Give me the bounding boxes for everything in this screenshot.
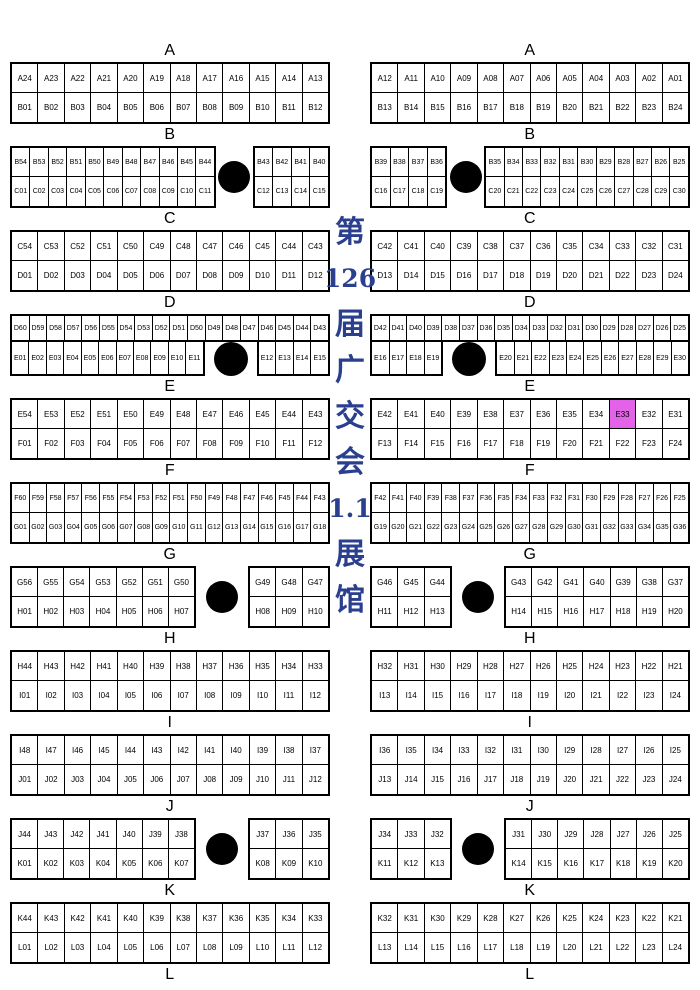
booth-H22[interactable]: H22 xyxy=(636,652,662,681)
booth-L09[interactable]: L09 xyxy=(223,933,249,962)
booth-B09[interactable]: B09 xyxy=(223,93,249,122)
booth-E43[interactable]: E43 xyxy=(303,400,328,429)
booth-K32[interactable]: K32 xyxy=(372,904,398,933)
booth-D36[interactable]: D36 xyxy=(478,316,496,340)
booth-B07[interactable]: B07 xyxy=(171,93,197,122)
booth-H42[interactable]: H42 xyxy=(65,652,91,681)
booth-K22[interactable]: K22 xyxy=(636,904,662,933)
booth-L08[interactable]: L08 xyxy=(197,933,223,962)
booth-B45[interactable]: B45 xyxy=(178,148,196,177)
booth-G45[interactable]: G45 xyxy=(398,568,424,597)
booth-G51[interactable]: G51 xyxy=(143,568,169,597)
booth-D50[interactable]: D50 xyxy=(188,316,206,340)
booth-F46[interactable]: F46 xyxy=(259,484,277,513)
booth-J34[interactable]: J34 xyxy=(372,820,398,849)
booth-H38[interactable]: H38 xyxy=(171,652,197,681)
booth-K34[interactable]: K34 xyxy=(276,904,302,933)
booth-K24[interactable]: K24 xyxy=(583,904,609,933)
booth-H08[interactable]: H08 xyxy=(250,597,276,626)
booth-F15[interactable]: F15 xyxy=(425,429,451,458)
booth-F23[interactable]: F23 xyxy=(636,429,662,458)
booth-F44[interactable]: F44 xyxy=(294,484,312,513)
booth-G42[interactable]: G42 xyxy=(532,568,558,597)
booth-B52[interactable]: B52 xyxy=(49,148,67,177)
booth-F05[interactable]: F05 xyxy=(118,429,144,458)
booth-K43[interactable]: K43 xyxy=(38,904,64,933)
booth-L18[interactable]: L18 xyxy=(504,933,530,962)
booth-F27[interactable]: F27 xyxy=(636,484,654,513)
booth-D59[interactable]: D59 xyxy=(30,316,48,340)
booth-B12[interactable]: B12 xyxy=(303,93,328,122)
booth-B54[interactable]: B54 xyxy=(12,148,30,177)
booth-J03[interactable]: J03 xyxy=(65,765,91,794)
booth-I13[interactable]: I13 xyxy=(372,681,398,710)
booth-J19[interactable]: J19 xyxy=(531,765,557,794)
booth-C19[interactable]: C19 xyxy=(428,177,446,206)
booth-E39[interactable]: E39 xyxy=(451,400,477,429)
booth-D40[interactable]: D40 xyxy=(407,316,425,340)
booth-I09[interactable]: I09 xyxy=(223,681,249,710)
booth-C21[interactable]: C21 xyxy=(505,177,523,206)
booth-G40[interactable]: G40 xyxy=(584,568,610,597)
booth-A06[interactable]: A06 xyxy=(531,64,557,93)
booth-C45[interactable]: C45 xyxy=(250,232,276,261)
booth-H24[interactable]: H24 xyxy=(583,652,609,681)
booth-G20[interactable]: G20 xyxy=(390,513,408,542)
booth-E05[interactable]: E05 xyxy=(82,342,99,374)
booth-J08[interactable]: J08 xyxy=(197,765,223,794)
booth-G36[interactable]: G36 xyxy=(671,513,688,542)
booth-D07[interactable]: D07 xyxy=(171,261,197,290)
booth-K11[interactable]: K11 xyxy=(372,849,398,878)
booth-A23[interactable]: A23 xyxy=(38,64,64,93)
booth-I16[interactable]: I16 xyxy=(451,681,477,710)
booth-H41[interactable]: H41 xyxy=(91,652,117,681)
booth-G30[interactable]: G30 xyxy=(566,513,584,542)
booth-G34[interactable]: G34 xyxy=(636,513,654,542)
booth-B51[interactable]: B51 xyxy=(67,148,85,177)
booth-G25[interactable]: G25 xyxy=(478,513,496,542)
booth-B30[interactable]: B30 xyxy=(578,148,596,177)
booth-K25[interactable]: K25 xyxy=(557,904,583,933)
booth-K38[interactable]: K38 xyxy=(171,904,197,933)
booth-C02[interactable]: C02 xyxy=(30,177,48,206)
booth-G52[interactable]: G52 xyxy=(117,568,143,597)
booth-C29[interactable]: C29 xyxy=(652,177,670,206)
booth-K41[interactable]: K41 xyxy=(91,904,117,933)
booth-D43[interactable]: D43 xyxy=(311,316,328,340)
booth-D20[interactable]: D20 xyxy=(557,261,583,290)
booth-E13[interactable]: E13 xyxy=(276,342,294,374)
booth-H13[interactable]: H13 xyxy=(425,597,450,626)
booth-I48[interactable]: I48 xyxy=(12,736,38,765)
booth-H40[interactable]: H40 xyxy=(118,652,144,681)
booth-L06[interactable]: L06 xyxy=(144,933,170,962)
booth-F31[interactable]: F31 xyxy=(566,484,584,513)
booth-D27[interactable]: D27 xyxy=(636,316,654,340)
booth-D04[interactable]: D04 xyxy=(91,261,117,290)
booth-K01[interactable]: K01 xyxy=(12,849,38,878)
booth-G10[interactable]: G10 xyxy=(170,513,188,542)
booth-J06[interactable]: J06 xyxy=(144,765,170,794)
booth-H29[interactable]: H29 xyxy=(451,652,477,681)
booth-J04[interactable]: J04 xyxy=(91,765,117,794)
booth-E46[interactable]: E46 xyxy=(223,400,249,429)
booth-D52[interactable]: D52 xyxy=(153,316,171,340)
booth-F18[interactable]: F18 xyxy=(504,429,530,458)
booth-A11[interactable]: A11 xyxy=(398,64,424,93)
booth-F55[interactable]: F55 xyxy=(100,484,118,513)
booth-B15[interactable]: B15 xyxy=(425,93,451,122)
booth-H30[interactable]: H30 xyxy=(425,652,451,681)
booth-I31[interactable]: I31 xyxy=(504,736,530,765)
booth-D31[interactable]: D31 xyxy=(566,316,584,340)
booth-I30[interactable]: I30 xyxy=(531,736,557,765)
booth-D33[interactable]: D33 xyxy=(530,316,548,340)
booth-C04[interactable]: C04 xyxy=(67,177,85,206)
booth-G55[interactable]: G55 xyxy=(38,568,64,597)
booth-K27[interactable]: K27 xyxy=(504,904,530,933)
booth-K12[interactable]: K12 xyxy=(398,849,424,878)
booth-H27[interactable]: H27 xyxy=(504,652,530,681)
booth-F06[interactable]: F06 xyxy=(144,429,170,458)
booth-C46[interactable]: C46 xyxy=(223,232,249,261)
booth-I47[interactable]: I47 xyxy=(38,736,64,765)
booth-D35[interactable]: D35 xyxy=(495,316,513,340)
booth-C17[interactable]: C17 xyxy=(391,177,410,206)
booth-E03[interactable]: E03 xyxy=(47,342,64,374)
booth-J39[interactable]: J39 xyxy=(143,820,169,849)
booth-D24[interactable]: D24 xyxy=(663,261,688,290)
booth-C06[interactable]: C06 xyxy=(104,177,122,206)
booth-D38[interactable]: D38 xyxy=(442,316,460,340)
booth-E20[interactable]: E20 xyxy=(497,342,514,374)
booth-H33[interactable]: H33 xyxy=(303,652,328,681)
booth-L19[interactable]: L19 xyxy=(531,933,557,962)
booth-C12[interactable]: C12 xyxy=(255,177,274,206)
booth-C15[interactable]: C15 xyxy=(310,177,328,206)
booth-L04[interactable]: L04 xyxy=(91,933,117,962)
booth-B17[interactable]: B17 xyxy=(478,93,504,122)
booth-A02[interactable]: A02 xyxy=(636,64,662,93)
booth-H14[interactable]: H14 xyxy=(506,597,532,626)
booth-A01[interactable]: A01 xyxy=(663,64,688,93)
booth-D57[interactable]: D57 xyxy=(65,316,83,340)
booth-C33[interactable]: C33 xyxy=(610,232,636,261)
booth-H03[interactable]: H03 xyxy=(64,597,90,626)
booth-D56[interactable]: D56 xyxy=(82,316,100,340)
booth-F11[interactable]: F11 xyxy=(276,429,302,458)
booth-B16[interactable]: B16 xyxy=(451,93,477,122)
booth-A08[interactable]: A08 xyxy=(478,64,504,93)
booth-E40[interactable]: E40 xyxy=(425,400,451,429)
booth-H19[interactable]: H19 xyxy=(637,597,663,626)
booth-F47[interactable]: F47 xyxy=(241,484,259,513)
booth-I37[interactable]: I37 xyxy=(303,736,328,765)
booth-B49[interactable]: B49 xyxy=(104,148,122,177)
booth-J11[interactable]: J11 xyxy=(276,765,302,794)
booth-C47[interactable]: C47 xyxy=(197,232,223,261)
booth-C51[interactable]: C51 xyxy=(91,232,117,261)
booth-F34[interactable]: F34 xyxy=(513,484,531,513)
booth-J42[interactable]: J42 xyxy=(64,820,90,849)
booth-D30[interactable]: D30 xyxy=(583,316,601,340)
booth-E15[interactable]: E15 xyxy=(311,342,328,374)
booth-L15[interactable]: L15 xyxy=(425,933,451,962)
booth-L21[interactable]: L21 xyxy=(583,933,609,962)
booth-G53[interactable]: G53 xyxy=(90,568,116,597)
booth-F36[interactable]: F36 xyxy=(478,484,496,513)
booth-E33-selected[interactable]: E33 xyxy=(610,400,636,429)
booth-F39[interactable]: F39 xyxy=(425,484,443,513)
booth-E37[interactable]: E37 xyxy=(504,400,530,429)
booth-I39[interactable]: I39 xyxy=(250,736,276,765)
booth-C41[interactable]: C41 xyxy=(398,232,424,261)
booth-I18[interactable]: I18 xyxy=(504,681,530,710)
booth-G56[interactable]: G56 xyxy=(12,568,38,597)
booth-F20[interactable]: F20 xyxy=(557,429,583,458)
booth-D23[interactable]: D23 xyxy=(636,261,662,290)
booth-L23[interactable]: L23 xyxy=(636,933,662,962)
booth-C40[interactable]: C40 xyxy=(425,232,451,261)
booth-H09[interactable]: H09 xyxy=(276,597,302,626)
booth-E30[interactable]: E30 xyxy=(672,342,688,374)
booth-F02[interactable]: F02 xyxy=(38,429,64,458)
booth-A16[interactable]: A16 xyxy=(223,64,249,93)
booth-G17[interactable]: G17 xyxy=(294,513,312,542)
booth-J27[interactable]: J27 xyxy=(611,820,637,849)
booth-F26[interactable]: F26 xyxy=(654,484,672,513)
booth-A17[interactable]: A17 xyxy=(197,64,223,93)
booth-C23[interactable]: C23 xyxy=(541,177,559,206)
booth-F14[interactable]: F14 xyxy=(398,429,424,458)
booth-J29[interactable]: J29 xyxy=(558,820,584,849)
booth-E27[interactable]: E27 xyxy=(619,342,636,374)
booth-J38[interactable]: J38 xyxy=(169,820,194,849)
booth-A22[interactable]: A22 xyxy=(65,64,91,93)
booth-B33[interactable]: B33 xyxy=(523,148,541,177)
booth-I27[interactable]: I27 xyxy=(610,736,636,765)
booth-K28[interactable]: K28 xyxy=(478,904,504,933)
booth-J28[interactable]: J28 xyxy=(584,820,610,849)
booth-C11[interactable]: C11 xyxy=(196,177,213,206)
booth-E22[interactable]: E22 xyxy=(532,342,549,374)
booth-G33[interactable]: G33 xyxy=(619,513,637,542)
booth-F43[interactable]: F43 xyxy=(311,484,328,513)
booth-G50[interactable]: G50 xyxy=(169,568,194,597)
booth-B26[interactable]: B26 xyxy=(652,148,670,177)
booth-K07[interactable]: K07 xyxy=(169,849,194,878)
booth-F16[interactable]: F16 xyxy=(451,429,477,458)
booth-G08[interactable]: G08 xyxy=(135,513,153,542)
booth-I26[interactable]: I26 xyxy=(636,736,662,765)
booth-A20[interactable]: A20 xyxy=(118,64,144,93)
booth-J26[interactable]: J26 xyxy=(637,820,663,849)
booth-E19[interactable]: E19 xyxy=(425,342,442,374)
booth-H20[interactable]: H20 xyxy=(663,597,688,626)
booth-E14[interactable]: E14 xyxy=(294,342,312,374)
booth-C49[interactable]: C49 xyxy=(144,232,170,261)
booth-J02[interactable]: J02 xyxy=(38,765,64,794)
booth-D21[interactable]: D21 xyxy=(583,261,609,290)
booth-G47[interactable]: G47 xyxy=(303,568,328,597)
booth-J16[interactable]: J16 xyxy=(451,765,477,794)
booth-A13[interactable]: A13 xyxy=(303,64,328,93)
booth-F10[interactable]: F10 xyxy=(250,429,276,458)
booth-B08[interactable]: B08 xyxy=(197,93,223,122)
booth-K15[interactable]: K15 xyxy=(532,849,558,878)
booth-D14[interactable]: D14 xyxy=(398,261,424,290)
booth-J40[interactable]: J40 xyxy=(117,820,143,849)
booth-H32[interactable]: H32 xyxy=(372,652,398,681)
booth-F12[interactable]: F12 xyxy=(303,429,328,458)
booth-B11[interactable]: B11 xyxy=(276,93,302,122)
booth-G41[interactable]: G41 xyxy=(558,568,584,597)
booth-J32[interactable]: J32 xyxy=(425,820,450,849)
booth-K06[interactable]: K06 xyxy=(143,849,169,878)
booth-J41[interactable]: J41 xyxy=(90,820,116,849)
booth-E35[interactable]: E35 xyxy=(557,400,583,429)
booth-G13[interactable]: G13 xyxy=(223,513,241,542)
booth-B43[interactable]: B43 xyxy=(255,148,274,177)
booth-F08[interactable]: F08 xyxy=(197,429,223,458)
booth-G12[interactable]: G12 xyxy=(206,513,224,542)
booth-F30[interactable]: F30 xyxy=(583,484,601,513)
booth-F52[interactable]: F52 xyxy=(153,484,171,513)
booth-I44[interactable]: I44 xyxy=(118,736,144,765)
booth-I10[interactable]: I10 xyxy=(250,681,276,710)
booth-D44[interactable]: D44 xyxy=(294,316,312,340)
booth-K17[interactable]: K17 xyxy=(584,849,610,878)
booth-E21[interactable]: E21 xyxy=(515,342,532,374)
booth-C07[interactable]: C07 xyxy=(123,177,141,206)
booth-D34[interactable]: D34 xyxy=(513,316,531,340)
booth-C01[interactable]: C01 xyxy=(12,177,30,206)
booth-D02[interactable]: D02 xyxy=(38,261,64,290)
booth-K31[interactable]: K31 xyxy=(398,904,424,933)
booth-B36[interactable]: B36 xyxy=(428,148,446,177)
booth-E23[interactable]: E23 xyxy=(550,342,567,374)
booth-L12[interactable]: L12 xyxy=(303,933,328,962)
booth-F28[interactable]: F28 xyxy=(619,484,637,513)
booth-G07[interactable]: G07 xyxy=(118,513,136,542)
booth-B32[interactable]: B32 xyxy=(541,148,559,177)
booth-I04[interactable]: I04 xyxy=(91,681,117,710)
booth-F50[interactable]: F50 xyxy=(188,484,206,513)
booth-J25[interactable]: J25 xyxy=(663,820,688,849)
booth-F56[interactable]: F56 xyxy=(82,484,100,513)
booth-D15[interactable]: D15 xyxy=(425,261,451,290)
booth-K04[interactable]: K04 xyxy=(90,849,116,878)
booth-H01[interactable]: H01 xyxy=(12,597,38,626)
booth-H25[interactable]: H25 xyxy=(557,652,583,681)
booth-E49[interactable]: E49 xyxy=(144,400,170,429)
booth-C25[interactable]: C25 xyxy=(578,177,596,206)
booth-I07[interactable]: I07 xyxy=(171,681,197,710)
booth-E10[interactable]: E10 xyxy=(169,342,186,374)
booth-G49[interactable]: G49 xyxy=(250,568,276,597)
booth-B29[interactable]: B29 xyxy=(597,148,615,177)
booth-L22[interactable]: L22 xyxy=(610,933,636,962)
booth-B04[interactable]: B04 xyxy=(91,93,117,122)
booth-F29[interactable]: F29 xyxy=(601,484,619,513)
booth-D39[interactable]: D39 xyxy=(425,316,443,340)
booth-G27[interactable]: G27 xyxy=(513,513,531,542)
booth-A04[interactable]: A04 xyxy=(583,64,609,93)
booth-D49[interactable]: D49 xyxy=(206,316,224,340)
booth-C38[interactable]: C38 xyxy=(478,232,504,261)
booth-C28[interactable]: C28 xyxy=(634,177,652,206)
booth-F25[interactable]: F25 xyxy=(671,484,688,513)
booth-E07[interactable]: E07 xyxy=(117,342,134,374)
booth-G05[interactable]: G05 xyxy=(82,513,100,542)
booth-D53[interactable]: D53 xyxy=(135,316,153,340)
booth-D29[interactable]: D29 xyxy=(601,316,619,340)
booth-D41[interactable]: D41 xyxy=(390,316,408,340)
booth-C50[interactable]: C50 xyxy=(118,232,144,261)
booth-K21[interactable]: K21 xyxy=(663,904,688,933)
booth-B23[interactable]: B23 xyxy=(636,93,662,122)
booth-L24[interactable]: L24 xyxy=(663,933,688,962)
booth-C22[interactable]: C22 xyxy=(523,177,541,206)
booth-D45[interactable]: D45 xyxy=(276,316,294,340)
booth-D47[interactable]: D47 xyxy=(241,316,259,340)
booth-H35[interactable]: H35 xyxy=(250,652,276,681)
booth-K35[interactable]: K35 xyxy=(250,904,276,933)
booth-I24[interactable]: I24 xyxy=(663,681,688,710)
booth-C14[interactable]: C14 xyxy=(292,177,311,206)
booth-B31[interactable]: B31 xyxy=(560,148,578,177)
booth-C27[interactable]: C27 xyxy=(615,177,633,206)
booth-J33[interactable]: J33 xyxy=(398,820,424,849)
booth-D16[interactable]: D16 xyxy=(451,261,477,290)
booth-I36[interactable]: I36 xyxy=(372,736,398,765)
booth-H39[interactable]: H39 xyxy=(144,652,170,681)
booth-C20[interactable]: C20 xyxy=(486,177,504,206)
booth-I02[interactable]: I02 xyxy=(38,681,64,710)
booth-G43[interactable]: G43 xyxy=(506,568,532,597)
booth-J18[interactable]: J18 xyxy=(504,765,530,794)
booth-I05[interactable]: I05 xyxy=(118,681,144,710)
booth-L07[interactable]: L07 xyxy=(171,933,197,962)
booth-C16[interactable]: C16 xyxy=(372,177,391,206)
booth-G32[interactable]: G32 xyxy=(601,513,619,542)
booth-G26[interactable]: G26 xyxy=(495,513,513,542)
booth-J01[interactable]: J01 xyxy=(12,765,38,794)
booth-E17[interactable]: E17 xyxy=(390,342,408,374)
booth-I17[interactable]: I17 xyxy=(478,681,504,710)
booth-B44[interactable]: B44 xyxy=(196,148,213,177)
booth-H37[interactable]: H37 xyxy=(197,652,223,681)
booth-D09[interactable]: D09 xyxy=(223,261,249,290)
booth-E53[interactable]: E53 xyxy=(38,400,64,429)
booth-K16[interactable]: K16 xyxy=(558,849,584,878)
booth-C35[interactable]: C35 xyxy=(557,232,583,261)
booth-A14[interactable]: A14 xyxy=(276,64,302,93)
booth-G48[interactable]: G48 xyxy=(276,568,302,597)
booth-D11[interactable]: D11 xyxy=(276,261,302,290)
booth-K02[interactable]: K02 xyxy=(38,849,64,878)
booth-F48[interactable]: F48 xyxy=(223,484,241,513)
booth-B35[interactable]: B35 xyxy=(486,148,504,177)
booth-I14[interactable]: I14 xyxy=(398,681,424,710)
booth-J14[interactable]: J14 xyxy=(398,765,424,794)
booth-F53[interactable]: F53 xyxy=(135,484,153,513)
booth-J44[interactable]: J44 xyxy=(12,820,38,849)
booth-K40[interactable]: K40 xyxy=(118,904,144,933)
booth-C08[interactable]: C08 xyxy=(141,177,159,206)
booth-K30[interactable]: K30 xyxy=(425,904,451,933)
